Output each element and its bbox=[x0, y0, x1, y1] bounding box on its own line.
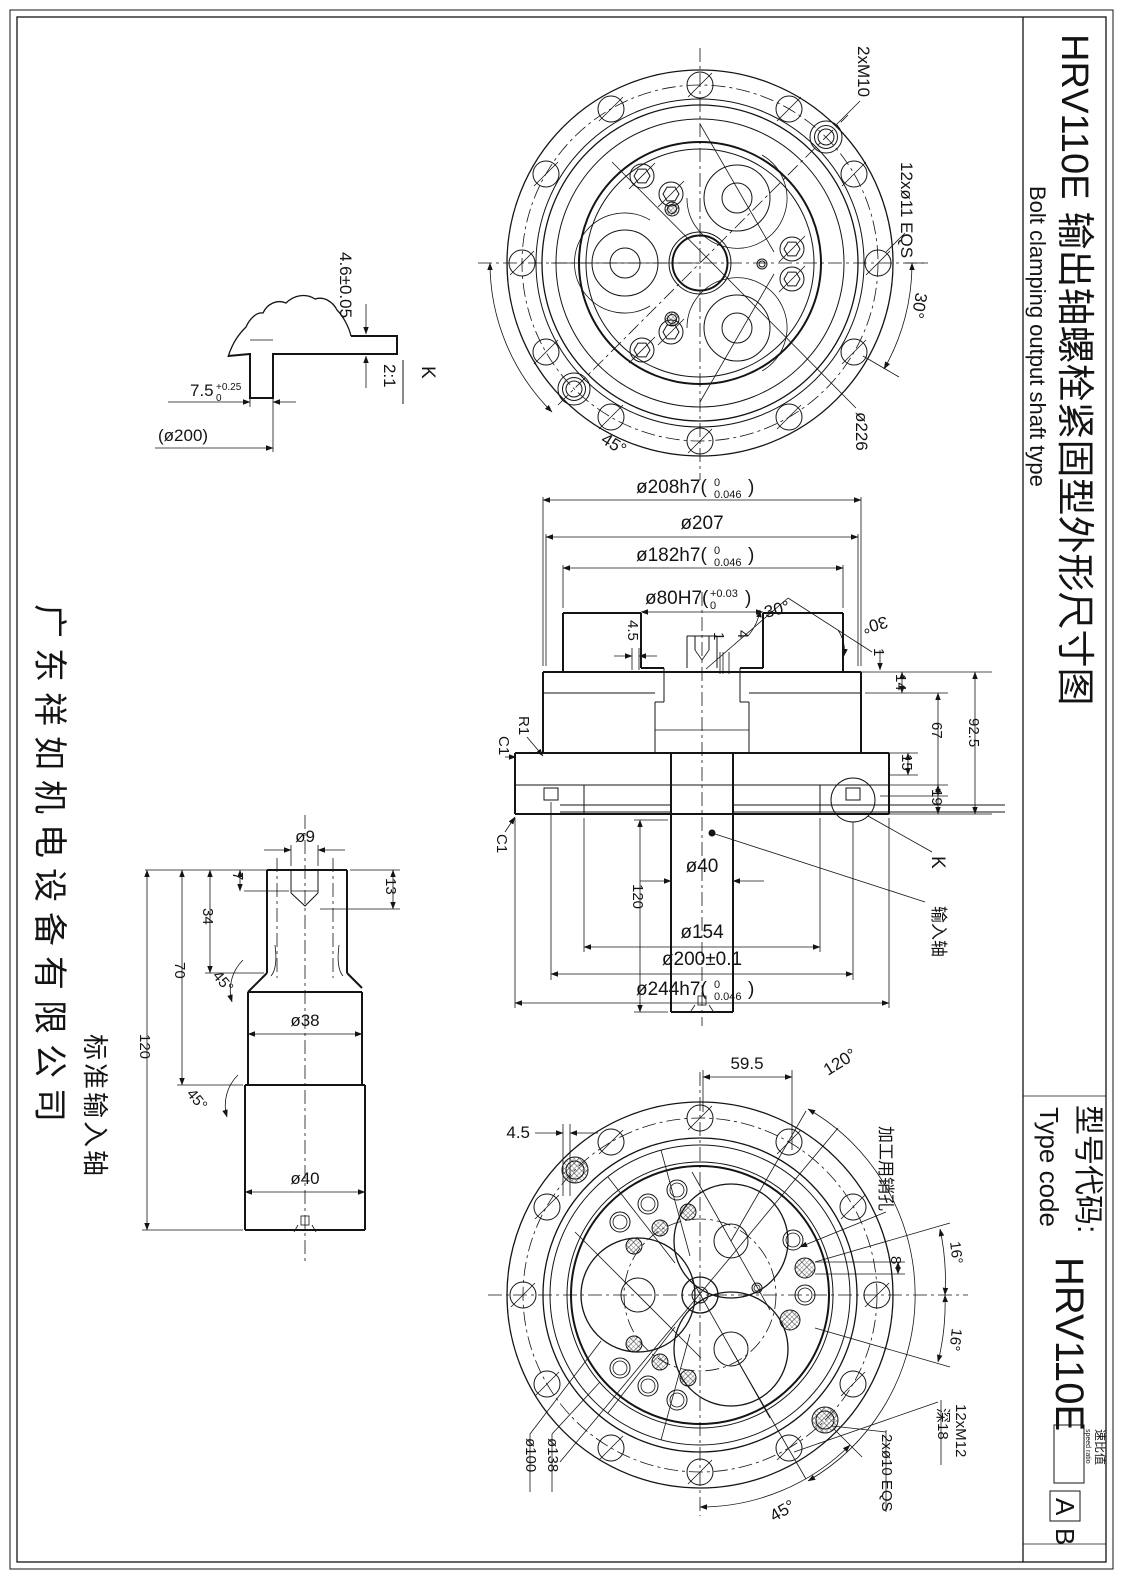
label-pin-hole: 加工用销孔 bbox=[876, 1126, 895, 1211]
input-shaft-view: ø9 7 13 34 70 120 45° 45° ø38 ø40 标准输入轴 bbox=[80, 815, 400, 1262]
speed-ratio-cn: 速比值 bbox=[1093, 1429, 1108, 1465]
bottom-gear-view: 59.5 4.5 120° 加工用销孔 8 16° 16° 12xM12 深18… bbox=[488, 1045, 969, 1526]
section-view: K ø208h7( 0 0.046 ) ø207 ø182h7( 0 0.046… bbox=[493, 477, 1005, 1026]
dim-138: ø138 bbox=[544, 1438, 561, 1472]
detail-k-slot-dn: 0 bbox=[216, 393, 222, 404]
dim-d38: ø38 bbox=[290, 1011, 319, 1030]
dim-15: 15 bbox=[898, 754, 915, 771]
dim-182-up: 0 bbox=[714, 545, 720, 557]
dim-12xd11: 12xø11 EQS bbox=[897, 162, 916, 258]
dim-80: ø80H7( bbox=[645, 588, 709, 609]
planet-gears-top bbox=[551, 124, 787, 402]
detail-k-refdia: (ø200) bbox=[158, 426, 208, 445]
dim-244-up: 0 bbox=[714, 979, 720, 991]
dim-d40: ø40 bbox=[290, 1169, 319, 1188]
dim-8: 8 bbox=[887, 1256, 904, 1264]
detail-k-slot-up: +0.25 bbox=[216, 382, 242, 393]
dim-len120: 120 bbox=[629, 884, 646, 909]
dim-208: ø208h7( bbox=[636, 477, 707, 498]
label-r1: R1 bbox=[515, 716, 532, 735]
dim-7: 7 bbox=[229, 872, 246, 880]
dim-4-5: 4.5 bbox=[624, 620, 641, 641]
dim-2xm10: 2xM10 bbox=[854, 46, 873, 97]
detail-k-slot: 7.5 bbox=[190, 381, 214, 400]
company-name: 广东祥如机电设备有限公司 bbox=[30, 604, 68, 1132]
dim-angle45a: 45° bbox=[209, 968, 237, 996]
dim-182: ø182h7( bbox=[636, 545, 707, 566]
dim-d9: ø9 bbox=[295, 827, 315, 846]
dim-angle45-bottom: 45° bbox=[767, 1496, 799, 1525]
detail-k-label: K bbox=[417, 366, 438, 379]
dim-244: ø244h7( bbox=[636, 979, 707, 1000]
type-code-block: 型号代码: Type code HRV110E 速比值 speed ratio … bbox=[1034, 1105, 1108, 1545]
type-code-label-en: Type code bbox=[1034, 1107, 1064, 1227]
dim-angle30b: 30° bbox=[860, 612, 890, 637]
dim-40: ø40 bbox=[686, 856, 719, 877]
dim-70: 70 bbox=[171, 962, 188, 979]
dim-182-dn: 0.046 bbox=[714, 557, 742, 569]
page-subtitle: Bolt clamping output shaft type bbox=[1025, 186, 1050, 487]
option-a: A bbox=[1050, 1498, 1080, 1516]
dim-208-up: 0 bbox=[714, 477, 720, 489]
drawing-sheet: HRV110E输出轴螺栓紧固型外形尺寸图 Bolt clamping outpu… bbox=[0, 0, 1123, 1579]
dim-angle30a: 30° bbox=[762, 597, 792, 622]
dim-59-5: 59.5 bbox=[730, 1054, 763, 1073]
dim-4: 4 bbox=[734, 630, 751, 638]
detail-k-scale: 2:1 bbox=[380, 364, 399, 388]
label-input-shaft: 输入轴 bbox=[929, 906, 948, 957]
dim-13: 13 bbox=[382, 878, 399, 895]
option-b: B bbox=[1050, 1528, 1080, 1545]
dim-208-dn: 0.046 bbox=[714, 489, 742, 501]
dim-100: ø100 bbox=[522, 1438, 539, 1472]
type-code-model: HRV110E bbox=[1047, 1257, 1091, 1431]
detail-k-view: 4.6±0.05 7.5 +0.25 0 (ø200) K 2:1 bbox=[155, 252, 438, 452]
dim-207: ø207 bbox=[680, 513, 723, 534]
page-title: HRV110E输出轴螺栓紧固型外形尺寸图 bbox=[1053, 34, 1095, 706]
dim-200: ø200±0.1 bbox=[662, 949, 742, 970]
dim-244-close: ) bbox=[748, 979, 754, 1000]
label-c1b: C1 bbox=[493, 834, 510, 853]
dim-34: 34 bbox=[199, 908, 216, 925]
dim-angle30-top: 30° bbox=[908, 291, 931, 320]
dim-14: 14 bbox=[892, 674, 909, 691]
input-shaft-caption: 标准输入轴 bbox=[80, 1034, 110, 1179]
dim-len120-shaft: 120 bbox=[136, 1034, 153, 1059]
top-flange-view: 2xM10 12xø11 EQS 30° ø226 45° bbox=[478, 46, 931, 480]
dim-m12-depth: 深18 bbox=[934, 1408, 951, 1440]
ratio-box bbox=[1054, 1425, 1084, 1483]
dim-4-5-bottom: 4.5 bbox=[506, 1123, 530, 1142]
dim-angle45b: 45° bbox=[183, 1086, 211, 1114]
pins-top bbox=[665, 202, 767, 326]
title-block: HRV110E输出轴螺栓紧固型外形尺寸图 Bolt clamping outpu… bbox=[1025, 34, 1095, 706]
drawing-canvas: HRV110E输出轴螺栓紧固型外形尺寸图 Bolt clamping outpu… bbox=[0, 0, 1123, 1579]
dim-92-5: 92.5 bbox=[965, 718, 982, 747]
dim-d226: ø226 bbox=[852, 412, 871, 451]
section-k-ref: K bbox=[927, 856, 948, 869]
dim-19: 19 bbox=[928, 789, 945, 806]
dim-80-dn: 0 bbox=[710, 600, 716, 612]
dim-angle16b: 16° bbox=[945, 1328, 965, 1353]
label-c1a: C1 bbox=[495, 736, 512, 755]
type-code-label-cn: 型号代码: bbox=[1071, 1105, 1104, 1233]
dim-244-dn: 0.046 bbox=[714, 991, 742, 1003]
dim-1b: 1 bbox=[870, 648, 887, 656]
dim-1a: 1 bbox=[710, 632, 727, 640]
dim-154: ø154 bbox=[680, 922, 724, 943]
dim-80-up: +0.03 bbox=[710, 588, 738, 600]
dim-12xm12: 12xM12 bbox=[952, 1404, 969, 1457]
dim-80-close: ) bbox=[745, 588, 751, 609]
dim-67: 67 bbox=[928, 722, 945, 739]
dim-2xd10: 2xø10 EQS bbox=[878, 1434, 895, 1512]
dim-angle120: 120° bbox=[820, 1045, 860, 1080]
dim-angle16a: 16° bbox=[946, 1240, 966, 1265]
dim-angle45-top: 45° bbox=[598, 429, 630, 459]
dim-208-close: ) bbox=[748, 477, 754, 498]
speed-ratio-en: speed ratio bbox=[1084, 1429, 1091, 1464]
dim-182-close: ) bbox=[748, 545, 754, 566]
detail-k-thickness: 4.6±0.05 bbox=[336, 252, 355, 318]
